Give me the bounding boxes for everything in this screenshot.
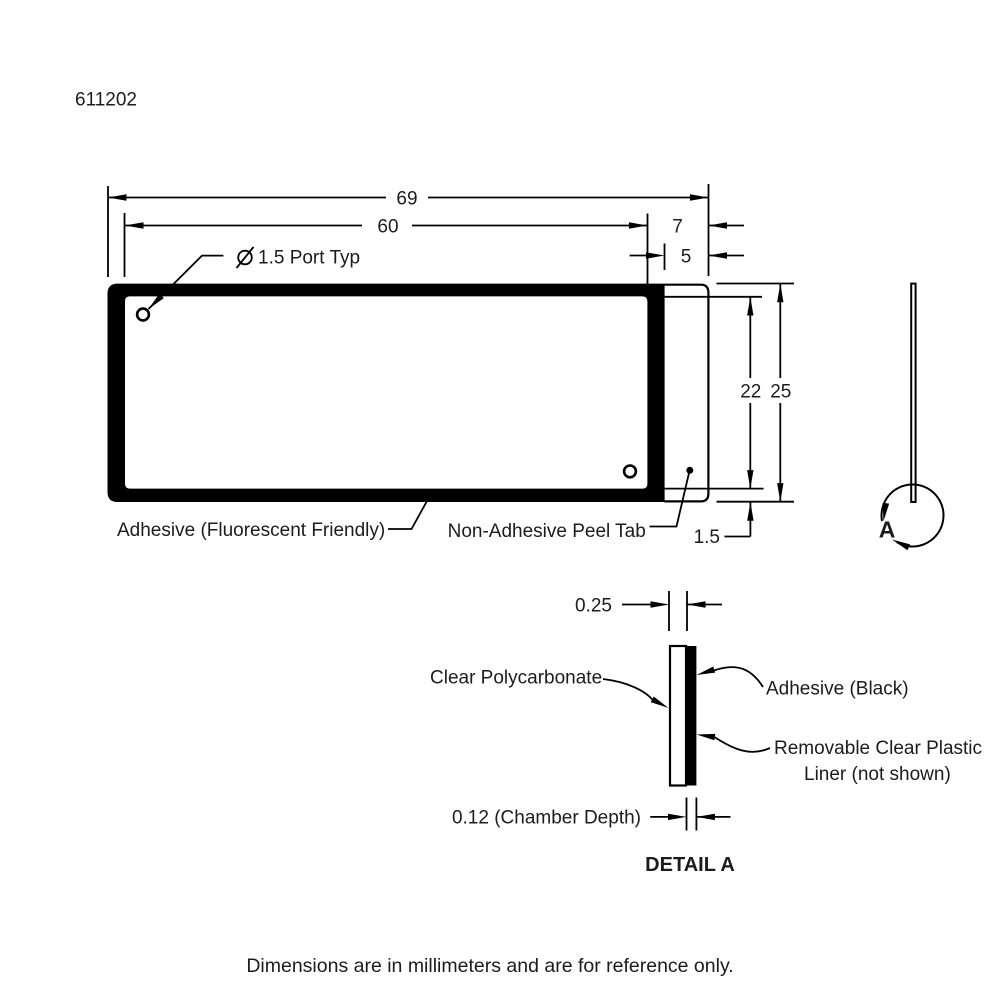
svg-text:22: 22 [740,381,761,402]
svg-text:Dimensions are in millimeters: Dimensions are in millimeters and are fo… [246,955,733,977]
svg-text:60: 60 [377,216,398,237]
svg-text:Adhesive (Black): Adhesive (Black) [766,678,909,699]
svg-text:Clear Polycarbonate: Clear Polycarbonate [430,668,602,689]
svg-text:1.5: 1.5 [694,527,720,548]
svg-text:Removable Clear Plastic: Removable Clear Plastic [774,738,982,759]
svg-text:0.25: 0.25 [575,595,612,616]
svg-text:1.5 Port Typ: 1.5 Port Typ [258,248,360,269]
svg-text:7: 7 [672,216,683,237]
svg-text:0.12 (Chamber Depth): 0.12 (Chamber Depth) [452,808,641,829]
svg-text:5: 5 [681,246,692,267]
svg-text:Liner (not shown): Liner (not shown) [804,764,951,785]
svg-text:611202: 611202 [75,90,137,111]
svg-text:A: A [879,517,896,543]
svg-text:DETAIL A: DETAIL A [645,854,735,876]
svg-text:Non-Adhesive Peel Tab: Non-Adhesive Peel Tab [448,521,646,542]
svg-text:Adhesive (Fluorescent Friendly: Adhesive (Fluorescent Friendly) [117,520,385,541]
svg-text:25: 25 [770,381,791,402]
svg-text:69: 69 [396,188,417,209]
